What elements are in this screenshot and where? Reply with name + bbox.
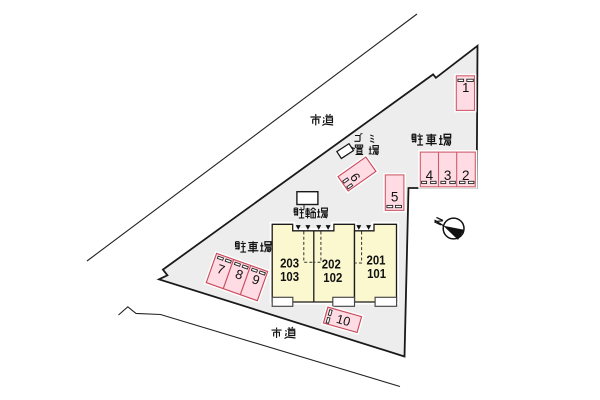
svg-text:5: 5 <box>391 190 399 205</box>
svg-text:3: 3 <box>444 168 452 183</box>
svg-text:102: 102 <box>323 270 342 285</box>
svg-text:103: 103 <box>280 269 299 284</box>
svg-text:1: 1 <box>462 80 469 95</box>
svg-text:101: 101 <box>367 266 386 281</box>
svg-text:4: 4 <box>426 168 434 183</box>
svg-text:2: 2 <box>462 168 470 183</box>
